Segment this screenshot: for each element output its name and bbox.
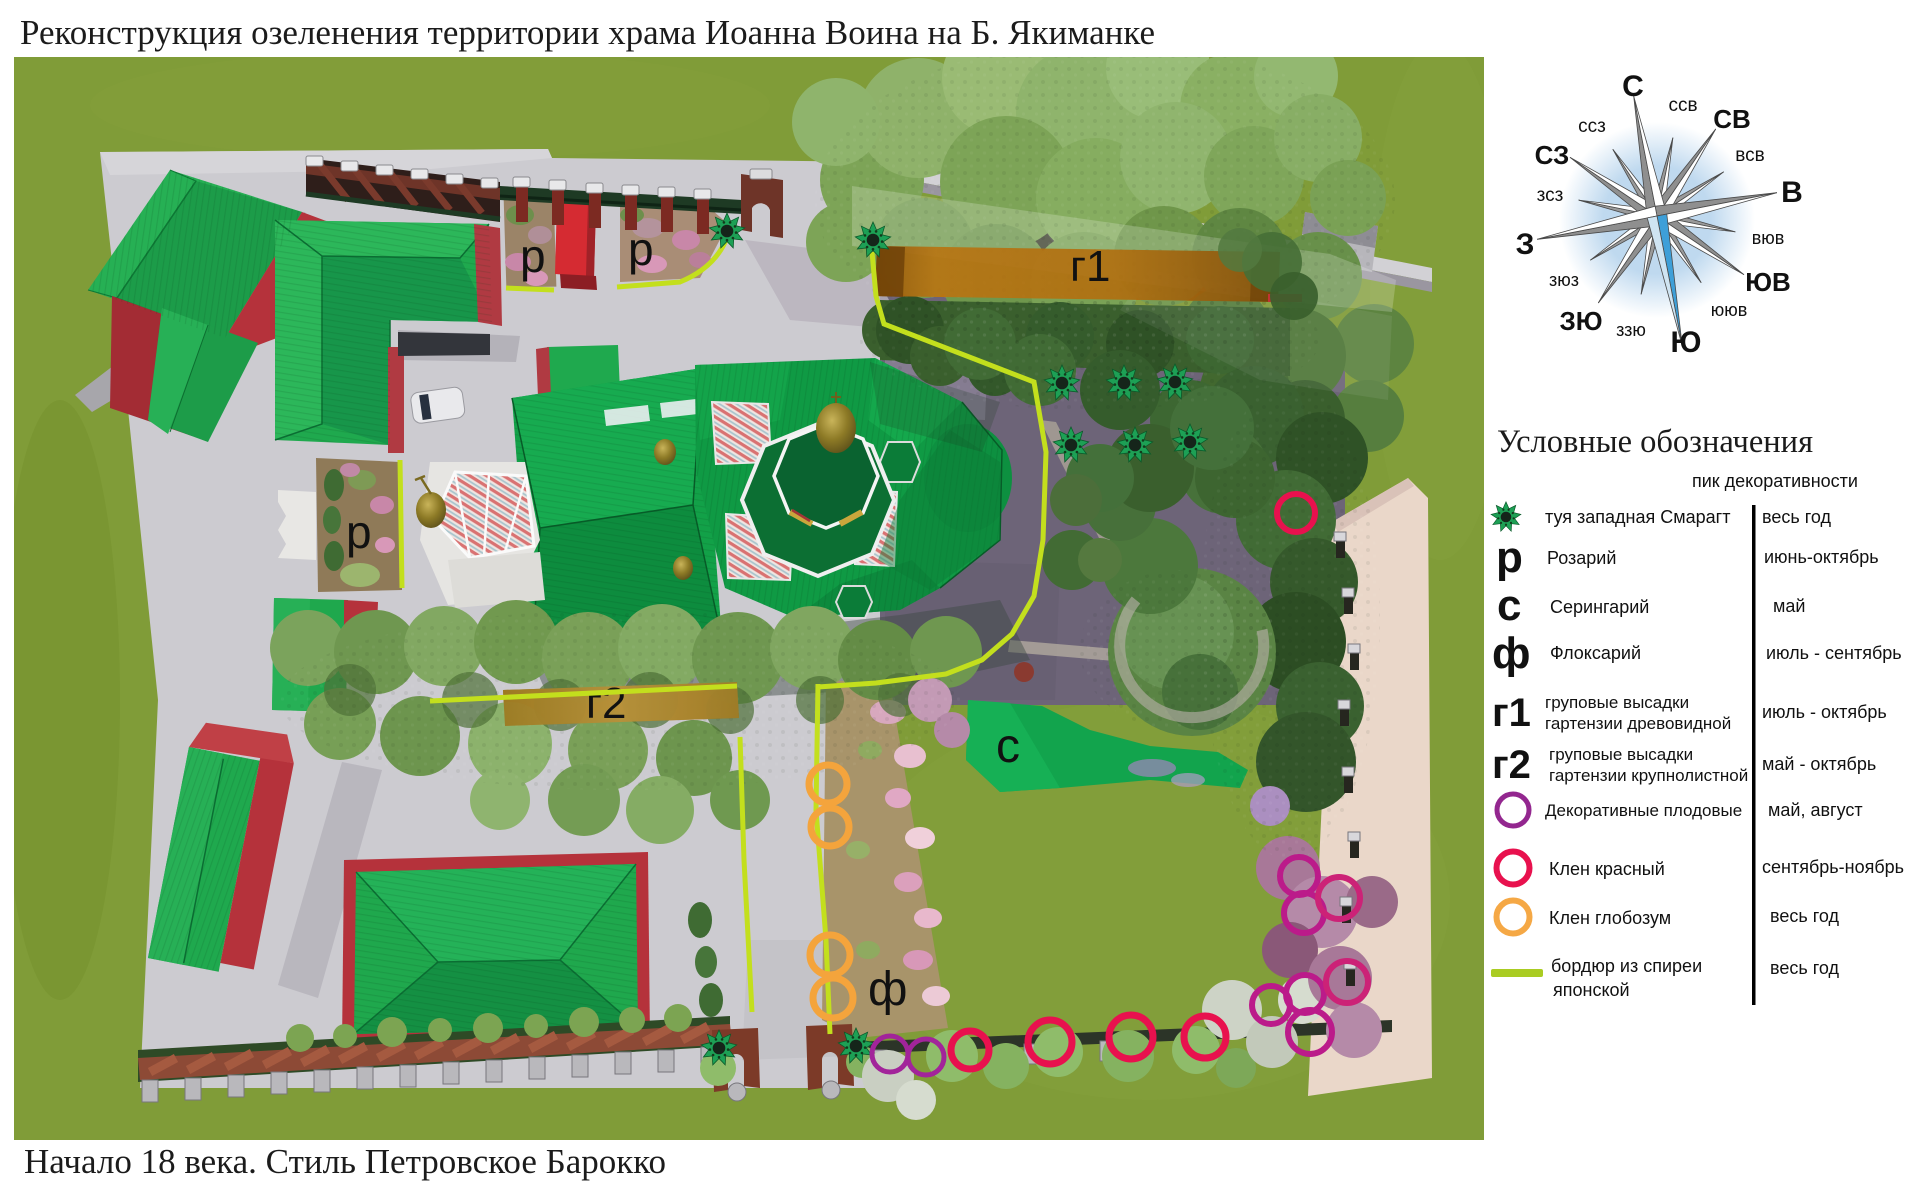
svg-text:ссз: ссз [1578, 116, 1606, 137]
svg-text:г2: г2 [586, 679, 627, 728]
svg-text:р: р [628, 223, 654, 275]
svg-text:гартензии крупнолистной: гартензии крупнолистной [1549, 766, 1748, 785]
svg-text:Клен красный: Клен красный [1549, 859, 1665, 879]
svg-text:гартензии древовидной: гартензии древовидной [1545, 714, 1731, 733]
svg-text:май: май [1773, 596, 1805, 616]
svg-text:С: С [1622, 70, 1644, 103]
svg-text:бордюр из спиреи: бордюр из спиреи [1551, 956, 1702, 976]
svg-text:З: З [1516, 228, 1535, 261]
svg-text:р: р [346, 506, 372, 558]
svg-text:ф: ф [1492, 629, 1531, 678]
svg-text:р: р [1496, 533, 1523, 582]
svg-text:май, август: май, август [1768, 800, 1863, 820]
svg-text:Ю: Ю [1671, 326, 1702, 359]
svg-text:с: с [1497, 581, 1521, 630]
svg-text:р: р [520, 230, 546, 282]
svg-text:Розарий: Розарий [1547, 548, 1616, 568]
svg-text:г2: г2 [1492, 743, 1531, 787]
svg-text:всв: всв [1735, 145, 1764, 166]
svg-text:весь год: весь год [1762, 507, 1832, 527]
svg-text:пик декоративности: пик декоративности [1692, 471, 1858, 491]
svg-text:июль - сентябрь: июль - сентябрь [1766, 643, 1902, 663]
svg-text:груповые высадки: груповые высадки [1549, 745, 1693, 764]
svg-text:Клен глобозум: Клен глобозум [1549, 908, 1671, 928]
svg-text:Реконструкция озеленения терр: Реконструкция озеленения территории храм… [20, 13, 1155, 52]
svg-text:В: В [1781, 176, 1803, 209]
svg-text:ссв: ссв [1668, 95, 1697, 116]
svg-text:ююв: ююв [1711, 300, 1748, 320]
svg-text:японской: японской [1553, 980, 1630, 1000]
svg-text:СВ: СВ [1713, 104, 1751, 134]
svg-text:июль - октябрь: июль - октябрь [1762, 702, 1887, 722]
svg-text:ЗЮ: ЗЮ [1559, 306, 1602, 336]
svg-text:ззю: ззю [1616, 320, 1646, 340]
svg-text:сентябрь-ноябрь: сентябрь-ноябрь [1762, 857, 1904, 877]
svg-text:Начало 18 века. Стиль Петровск: Начало 18 века. Стиль Петровское Барокко [24, 1142, 666, 1181]
svg-text:Серингарий: Серингарий [1550, 597, 1649, 617]
svg-text:г1: г1 [1492, 691, 1531, 735]
svg-text:ф: ф [868, 963, 908, 1016]
svg-text:май - октябрь: май - октябрь [1762, 754, 1876, 774]
svg-text:г1: г1 [1070, 242, 1111, 291]
svg-text:зсз: зсз [1537, 185, 1564, 206]
svg-text:весь год: весь год [1770, 906, 1840, 926]
svg-text:зюз: зюз [1549, 270, 1579, 290]
svg-text:июнь-октябрь: июнь-октябрь [1764, 547, 1879, 567]
svg-text:весь год: весь год [1770, 958, 1840, 978]
svg-text:ЮВ: ЮВ [1745, 267, 1791, 297]
svg-text:СЗ: СЗ [1535, 140, 1570, 170]
svg-text:с: с [996, 720, 1020, 773]
svg-text:груповые высадки: груповые высадки [1545, 693, 1689, 712]
svg-text:Флоксарий: Флоксарий [1550, 643, 1641, 663]
svg-text:Декоративные плодовые: Декоративные плодовые [1545, 801, 1742, 820]
svg-text:вюв: вюв [1752, 228, 1785, 248]
svg-text:туя западная Смарагт: туя западная Смарагт [1545, 507, 1730, 527]
svg-text:Условные обозначения: Условные обозначения [1497, 424, 1813, 460]
